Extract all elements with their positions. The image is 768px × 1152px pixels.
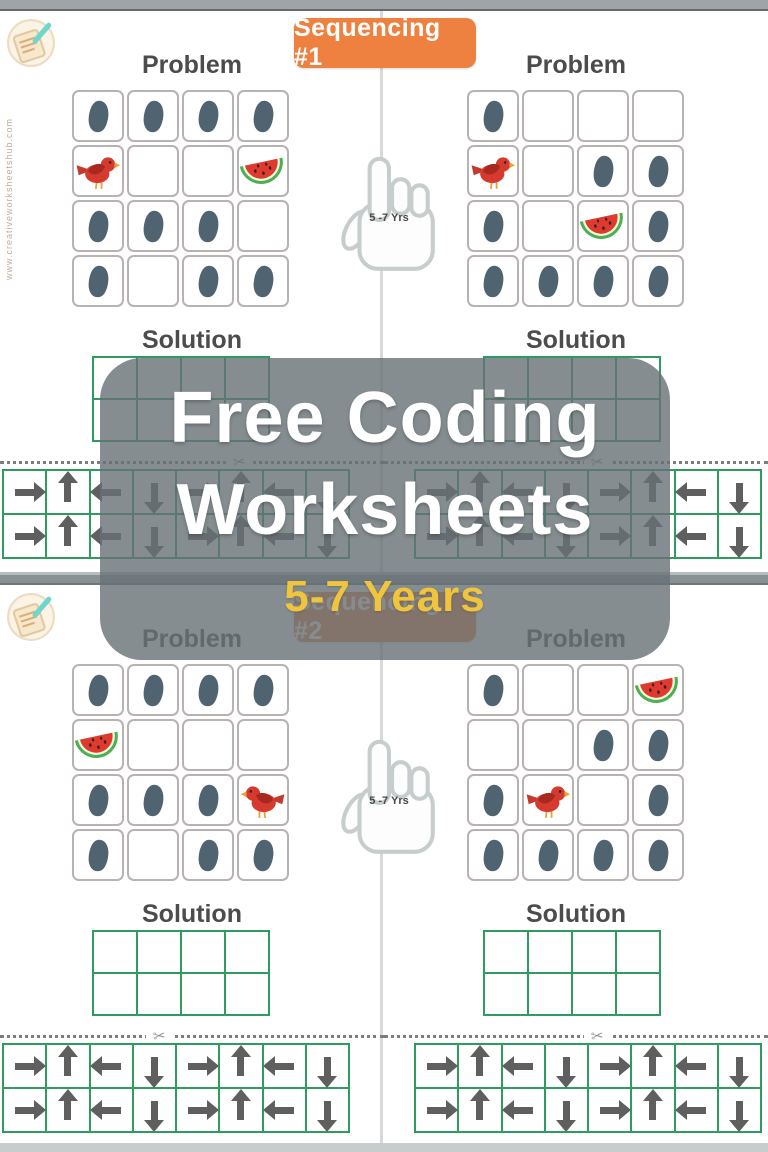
footprint-icon: [140, 99, 167, 134]
footprint-icon: [250, 264, 277, 299]
footprint-icon: [85, 673, 112, 708]
arrow-cell: [46, 514, 89, 558]
arrow-down-icon: [151, 1101, 158, 1120]
arrow-cell: [219, 1088, 262, 1132]
arrow-cell: [46, 1044, 89, 1088]
hand-age-label: 5 -7 Yrs: [333, 212, 445, 224]
solution-grid: [483, 930, 661, 1016]
solution-cell: [181, 931, 225, 973]
pin-image: { "overlay": { "title_line1": "Free Codi…: [0, 0, 768, 1152]
cell-footprint: [182, 664, 234, 716]
footprint-icon: [85, 264, 112, 299]
bottom-gray-bar: [0, 1143, 768, 1152]
cell-empty: [522, 90, 574, 142]
bird-right-icon: [470, 151, 516, 191]
footprint-icon: [645, 264, 672, 299]
arrow-up-icon: [64, 527, 71, 546]
footprint-icon: [480, 264, 507, 299]
arrow-cell: [675, 1044, 718, 1088]
arrow-cell: [458, 1088, 501, 1132]
cell-footprint: [72, 774, 124, 826]
footprint-icon: [535, 838, 562, 873]
promo-title-line1: Free Coding: [100, 372, 670, 464]
arrow-left-icon: [514, 1107, 533, 1114]
arrow-down-icon: [563, 1101, 570, 1120]
solution-cell: [616, 973, 660, 1015]
cell-footprint: [577, 255, 629, 307]
arrow-left-icon: [102, 1063, 121, 1070]
solution-cell: [616, 931, 660, 973]
arrow-left-icon: [275, 1107, 294, 1114]
cell-footprint: [182, 90, 234, 142]
arrow-cell: [415, 1088, 458, 1132]
cell-footprint: [632, 145, 684, 197]
footprint-icon: [590, 154, 617, 189]
footprint-icon: [140, 783, 167, 818]
promo-overlay: Free Coding Worksheets 5-7 Years: [100, 358, 670, 660]
watermelon-icon: [74, 728, 122, 762]
site-logo-icon: [6, 18, 56, 68]
cell-footprint: [127, 664, 179, 716]
footprint-icon: [645, 783, 672, 818]
arrow-cell: [545, 1044, 588, 1088]
cell-footprint: [182, 774, 234, 826]
footprint-icon: [590, 838, 617, 873]
hand-cursor-icon: 5 -7 Yrs: [333, 150, 445, 298]
arrow-cell: [502, 1088, 545, 1132]
cell-footprint: [237, 255, 289, 307]
arrow-cell: [718, 514, 761, 558]
arrow-up-icon: [237, 1101, 244, 1120]
arrow-right-icon: [600, 1063, 619, 1070]
arrow-right-icon: [188, 1063, 207, 1070]
cell-watermelon: [237, 145, 289, 197]
footprint-icon: [85, 209, 112, 244]
cell-empty: [577, 774, 629, 826]
solution-cell: [484, 931, 528, 973]
cell-footprint: [467, 200, 519, 252]
arrow-down-icon: [324, 1057, 331, 1076]
worksheet-page-2: Problem Solution ✂ Problem Solution ✂ Se…: [0, 585, 768, 1143]
solution-cell: [137, 931, 181, 973]
footprint-icon: [480, 838, 507, 873]
cell-empty: [522, 664, 574, 716]
arrow-cell: [675, 470, 718, 514]
footprint-icon: [250, 673, 277, 708]
cell-footprint: [127, 90, 179, 142]
arrow-cell: [588, 1088, 631, 1132]
footprint-icon: [140, 209, 167, 244]
cell-footprint: [467, 90, 519, 142]
arrow-cell: [3, 1088, 46, 1132]
footprint-icon: [645, 838, 672, 873]
arrow-cell: [263, 1088, 306, 1132]
watermelon-icon: [579, 209, 627, 243]
solution-title: Solution: [384, 326, 768, 355]
cell-empty: [127, 829, 179, 881]
cut-line: ✂: [0, 1035, 384, 1038]
arrow-down-icon: [324, 1101, 331, 1120]
cell-watermelon: [632, 664, 684, 716]
cell-footprint: [72, 90, 124, 142]
watermelon-icon: [634, 673, 682, 707]
arrow-right-icon: [427, 1107, 446, 1114]
arrow-up-icon: [237, 1057, 244, 1076]
cell-bird-right: [467, 145, 519, 197]
arrow-left-icon: [687, 1063, 706, 1070]
arrow-up-icon: [649, 1057, 656, 1076]
watermelon-icon: [239, 154, 287, 188]
arrow-cell: [718, 1044, 761, 1088]
cell-footprint: [127, 200, 179, 252]
cell-empty: [182, 719, 234, 771]
cell-empty: [577, 90, 629, 142]
arrow-cell: [631, 1044, 674, 1088]
solution-title: Solution: [0, 326, 384, 355]
arrow-cell: [718, 470, 761, 514]
arrow-cell: [133, 1044, 176, 1088]
arrow-cell: [3, 470, 46, 514]
arrow-cell: [133, 1088, 176, 1132]
footprint-icon: [535, 264, 562, 299]
arrow-right-icon: [15, 533, 34, 540]
arrow-cell: [176, 1044, 219, 1088]
sequencing-badge: Sequencing #1: [294, 18, 476, 68]
arrow-left-icon: [687, 533, 706, 540]
footprint-icon: [85, 783, 112, 818]
arrow-down-icon: [736, 483, 743, 502]
arrow-left-icon: [275, 1063, 294, 1070]
footprint-icon: [140, 673, 167, 708]
arrow-cell: [46, 470, 89, 514]
cell-footprint: [467, 664, 519, 716]
arrow-up-icon: [649, 1101, 656, 1120]
cell-empty: [522, 145, 574, 197]
arrow-left-icon: [514, 1063, 533, 1070]
cell-footprint: [522, 829, 574, 881]
footprint-icon: [645, 209, 672, 244]
footprint-icon: [250, 99, 277, 134]
arrow-cell: [90, 1088, 133, 1132]
cell-empty: [182, 145, 234, 197]
cell-empty: [237, 719, 289, 771]
solution-cell: [225, 931, 269, 973]
promo-title-line2: Worksheets: [100, 464, 670, 556]
top-gray-bar: [0, 0, 768, 11]
solution-cell: [181, 973, 225, 1015]
arrow-strip: [414, 1043, 762, 1133]
arrow-cell: [458, 1044, 501, 1088]
arrow-left-icon: [687, 489, 706, 496]
solution-cell: [528, 931, 572, 973]
arrow-cell: [3, 1044, 46, 1088]
solution-cell: [484, 973, 528, 1015]
cell-footprint: [127, 774, 179, 826]
cell-empty: [522, 200, 574, 252]
cell-footprint: [182, 200, 234, 252]
cell-footprint: [182, 255, 234, 307]
cell-empty: [577, 664, 629, 716]
cell-watermelon: [72, 719, 124, 771]
arrow-up-icon: [64, 483, 71, 502]
footprint-icon: [195, 783, 222, 818]
solution-cell: [93, 973, 137, 1015]
solution-cell: [225, 973, 269, 1015]
cell-bird-left: [237, 774, 289, 826]
arrow-cell: [46, 1088, 89, 1132]
hand-cursor-icon: 5 -7 Yrs: [333, 733, 445, 881]
footprint-icon: [250, 838, 277, 873]
arrow-left-icon: [102, 1107, 121, 1114]
arrow-cell: [675, 1088, 718, 1132]
bird-left-icon: [240, 780, 286, 820]
arrow-right-icon: [15, 1063, 34, 1070]
arrow-cell: [176, 1088, 219, 1132]
arrow-right-icon: [15, 489, 34, 496]
arrow-down-icon: [151, 1057, 158, 1076]
solution-cell: [528, 973, 572, 1015]
footprint-icon: [85, 99, 112, 134]
cell-empty: [467, 719, 519, 771]
cell-footprint: [467, 774, 519, 826]
solution-cell: [93, 931, 137, 973]
cell-footprint: [577, 829, 629, 881]
arrow-cell: [263, 1044, 306, 1088]
cut-line: ✂: [384, 1035, 768, 1038]
arrow-up-icon: [64, 1057, 71, 1076]
arrow-down-icon: [736, 527, 743, 546]
cell-empty: [127, 255, 179, 307]
arrow-cell: [675, 514, 718, 558]
arrow-up-icon: [64, 1101, 71, 1120]
cell-footprint: [632, 255, 684, 307]
arrow-cell: [631, 1088, 674, 1132]
cell-footprint: [237, 829, 289, 881]
arrow-right-icon: [15, 1107, 34, 1114]
cell-footprint: [72, 829, 124, 881]
cell-empty: [237, 200, 289, 252]
arrow-cell: [588, 1044, 631, 1088]
footprint-icon: [195, 99, 222, 134]
cell-bird-right: [522, 774, 574, 826]
cell-footprint: [467, 829, 519, 881]
cell-footprint: [632, 200, 684, 252]
footprint-icon: [590, 728, 617, 763]
cell-watermelon: [577, 200, 629, 252]
cell-footprint: [632, 774, 684, 826]
arrow-cell: [90, 1044, 133, 1088]
cell-footprint: [72, 200, 124, 252]
arrow-cell: [3, 514, 46, 558]
hand-age-label: 5 -7 Yrs: [333, 795, 445, 807]
arrow-down-icon: [736, 1101, 743, 1120]
footprint-icon: [590, 264, 617, 299]
arrow-right-icon: [427, 1063, 446, 1070]
arrow-cell: [306, 1088, 349, 1132]
problem-grid: [467, 664, 684, 881]
arrow-cell: [545, 1088, 588, 1132]
arrow-down-icon: [736, 1057, 743, 1076]
solution-cell: [572, 931, 616, 973]
cell-footprint: [577, 145, 629, 197]
bird-right-icon: [525, 780, 571, 820]
cell-empty: [632, 90, 684, 142]
cell-empty: [522, 719, 574, 771]
cell-footprint: [577, 719, 629, 771]
cell-footprint: [72, 255, 124, 307]
solution-title: Solution: [384, 900, 768, 929]
problem-grid: [72, 90, 289, 307]
cell-empty: [127, 719, 179, 771]
arrow-down-icon: [563, 1057, 570, 1076]
footprint-icon: [480, 209, 507, 244]
bird-right-icon: [75, 151, 121, 191]
cell-footprint: [182, 829, 234, 881]
arrow-cell: [502, 1044, 545, 1088]
footprint-icon: [85, 838, 112, 873]
footprint-icon: [480, 99, 507, 134]
cell-footprint: [237, 90, 289, 142]
problem-grid: [467, 90, 684, 307]
cell-empty: [127, 145, 179, 197]
arrow-cell: [718, 1088, 761, 1132]
cell-footprint: [467, 255, 519, 307]
arrow-up-icon: [476, 1101, 483, 1120]
arrow-strip: [2, 1043, 350, 1133]
cell-footprint: [522, 255, 574, 307]
footprint-icon: [195, 264, 222, 299]
footprint-icon: [645, 728, 672, 763]
arrow-cell: [219, 1044, 262, 1088]
promo-subtitle: 5-7 Years: [100, 572, 670, 622]
cell-footprint: [72, 664, 124, 716]
arrow-cell: [415, 1044, 458, 1088]
cell-footprint: [632, 719, 684, 771]
arrow-right-icon: [600, 1107, 619, 1114]
footprint-icon: [195, 209, 222, 244]
cell-bird-right: [72, 145, 124, 197]
footprint-icon: [645, 154, 672, 189]
cell-footprint: [632, 829, 684, 881]
site-logo-icon: [6, 592, 56, 642]
arrow-right-icon: [188, 1107, 207, 1114]
solution-grid: [92, 930, 270, 1016]
arrow-cell: [306, 1044, 349, 1088]
problem-grid: [72, 664, 289, 881]
footprint-icon: [480, 783, 507, 818]
arrow-up-icon: [476, 1057, 483, 1076]
footprint-icon: [195, 673, 222, 708]
footprint-icon: [195, 838, 222, 873]
watermark-url: www.creativeworksheetshub.com: [4, 70, 14, 280]
solution-title: Solution: [0, 900, 384, 929]
solution-cell: [137, 973, 181, 1015]
cell-footprint: [237, 664, 289, 716]
arrow-left-icon: [687, 1107, 706, 1114]
worksheet-half: Problem Solution ✂: [0, 585, 384, 1143]
solution-cell: [572, 973, 616, 1015]
footprint-icon: [480, 673, 507, 708]
